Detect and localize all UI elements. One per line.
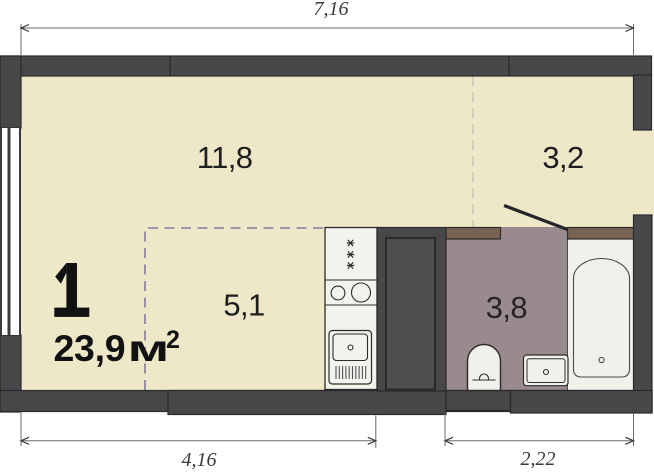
svg-text:23,9: 23,9 [54,327,126,369]
svg-text:7,16: 7,16 [314,0,349,20]
svg-text:3,2: 3,2 [542,140,583,175]
svg-text:4,16: 4,16 [182,449,217,470]
svg-text:3,8: 3,8 [486,290,527,325]
svg-text:5,1: 5,1 [223,288,264,323]
svg-text:2: 2 [166,326,180,354]
svg-text:м: м [128,328,170,369]
svg-text:11,8: 11,8 [197,140,253,175]
svg-text:2,22: 2,22 [521,448,556,470]
